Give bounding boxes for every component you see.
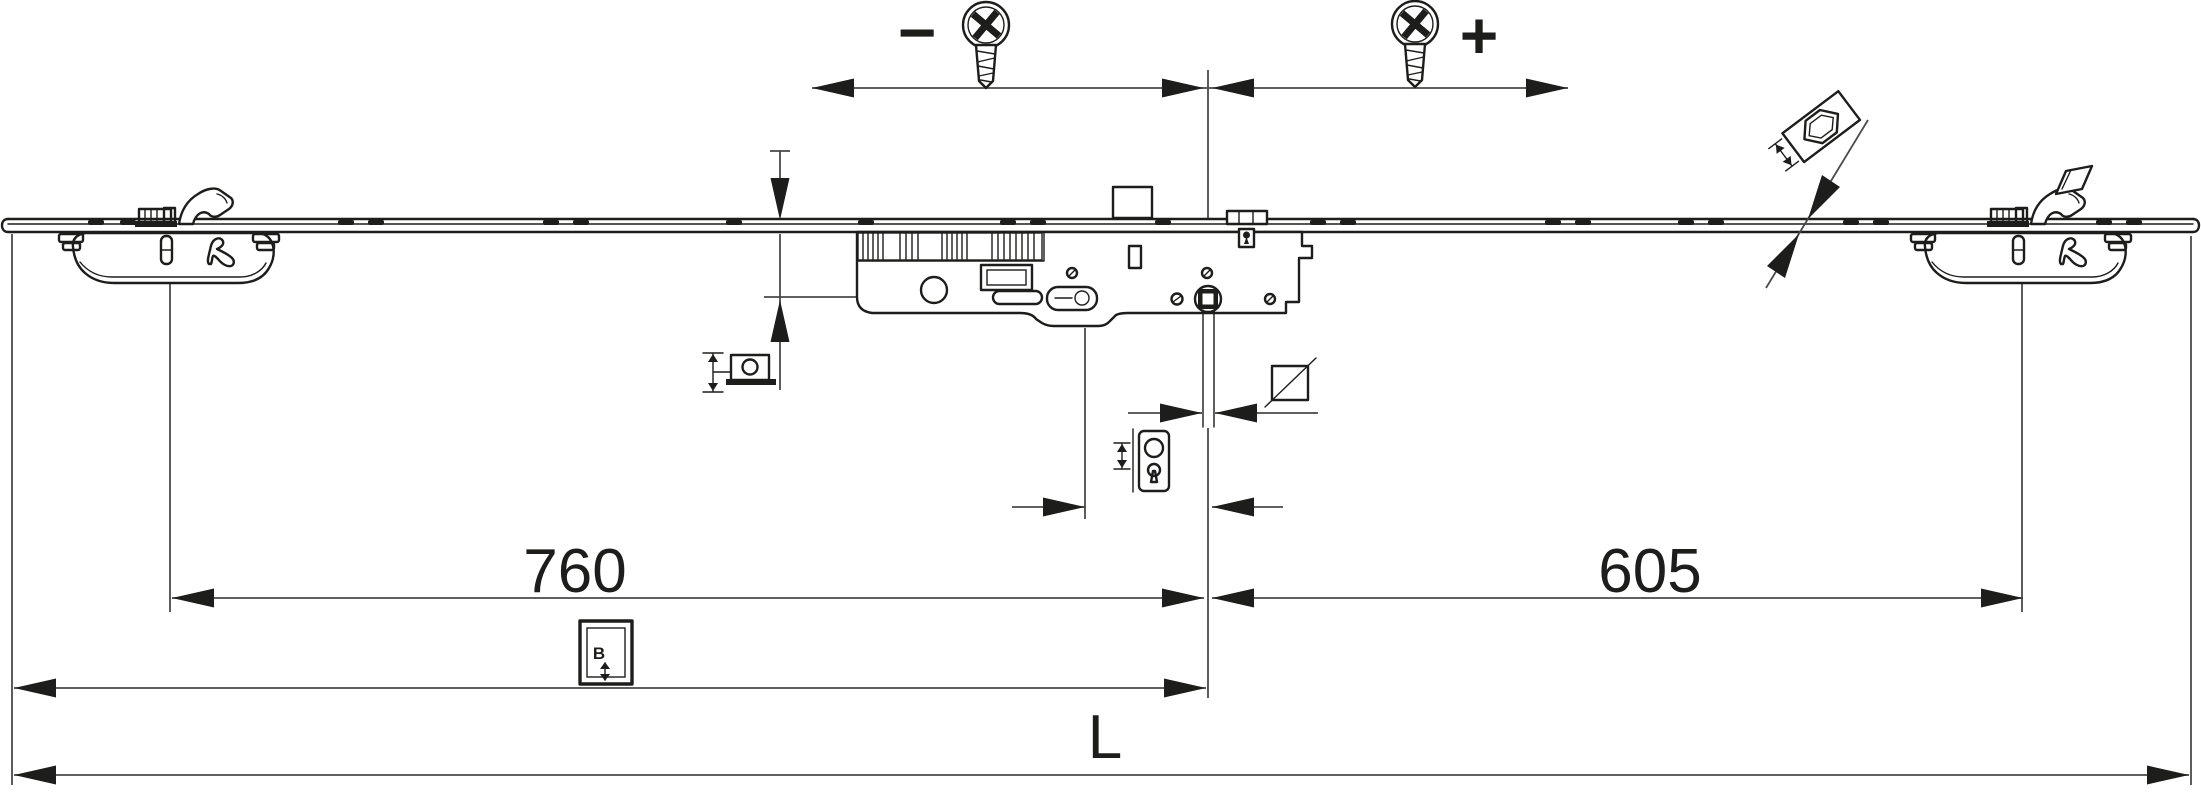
- plus-label: +: [1460, 0, 1499, 72]
- minus-label: −: [898, 0, 937, 69]
- dimension-value-L: L: [1088, 703, 1122, 772]
- dimension-value-605: 605: [1598, 537, 1701, 606]
- espagnolette-lock-drawing: B − + 760 605 L: [0, 0, 2201, 800]
- technical-drawing-page: B − + 760 605 L: [0, 0, 2201, 800]
- b-icon-letter: B: [593, 644, 605, 663]
- keyhole-tab: [1239, 229, 1254, 247]
- background: [0, 0, 2201, 800]
- gearbox-slide-slot: [993, 291, 1042, 304]
- handle-spindle-hub: [1195, 286, 1221, 312]
- gearbox-top-tab: [1113, 187, 1152, 218]
- dimension-value-760: 760: [523, 537, 626, 606]
- cylinder-keyway: [1047, 287, 1097, 310]
- square-spindle-icon: [1265, 358, 1316, 407]
- gearbox-clip: [1227, 211, 1267, 224]
